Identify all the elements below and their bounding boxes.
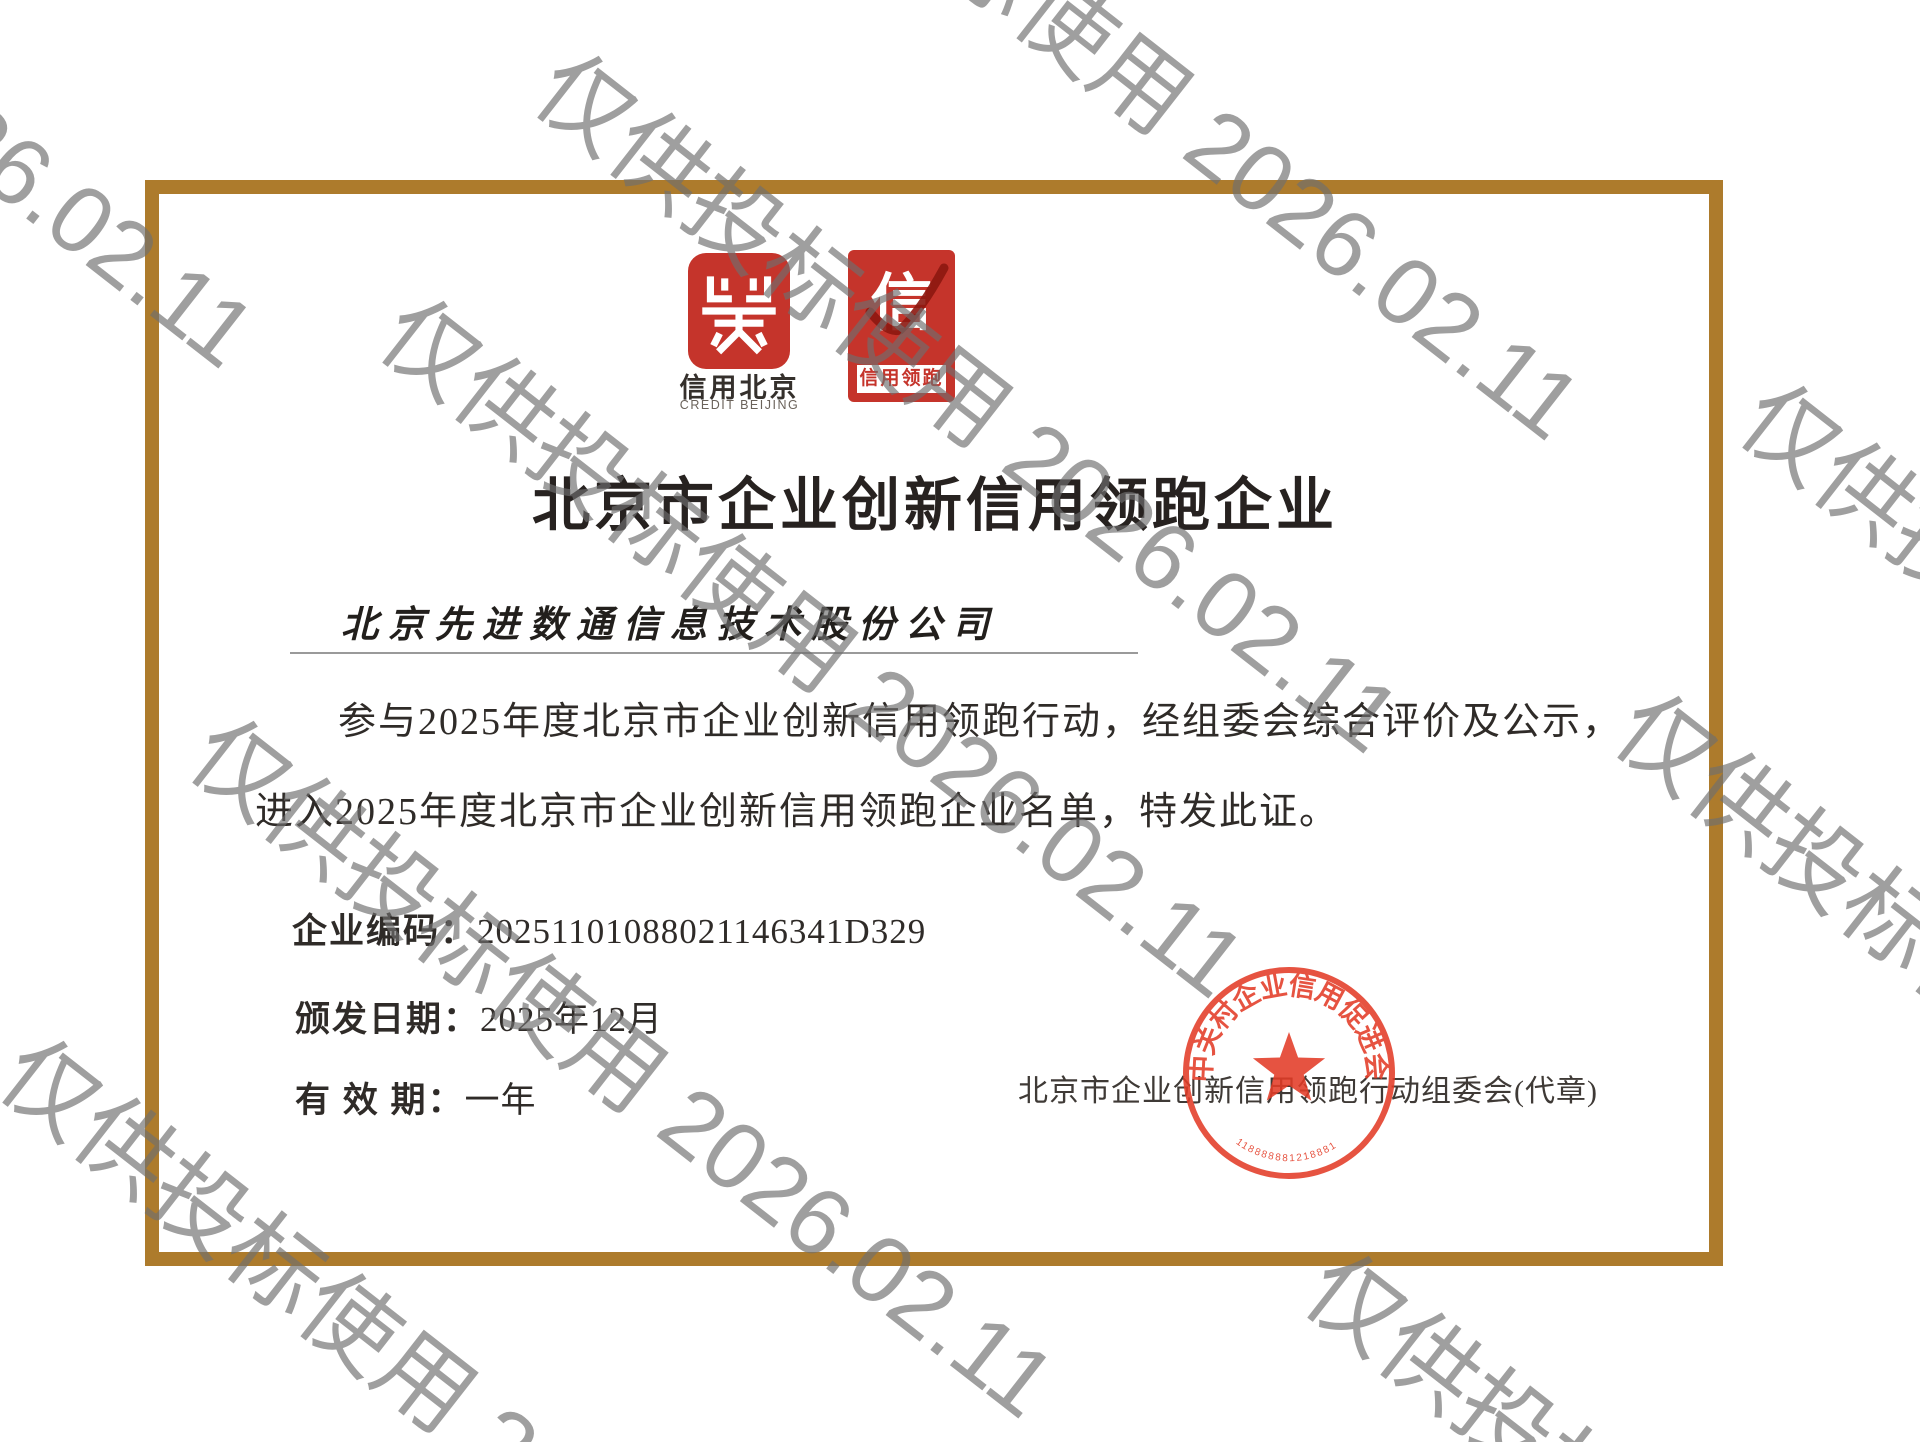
enterprise-code-field: 企业编码：20251101088021146341D329	[292, 903, 926, 954]
company-name: 北京先进数通信息技术股份公司	[300, 594, 1040, 648]
issue-date-value: 2025年12月	[480, 1000, 663, 1039]
credit-leader-label: 信用领跑	[855, 363, 948, 395]
credit-beijing-emblem-icon	[688, 253, 790, 369]
enterprise-code-value: 20251101088021146341D329	[477, 912, 926, 951]
validity-label: 有 效 期：	[295, 1081, 465, 1120]
validity-field: 有 效 期：一年	[295, 1072, 537, 1123]
watermark-text: 仅供投标使用 2026.02.11	[1716, 345, 1920, 1109]
official-seal-stamp: 中关村企业信用促进会 118888881218881	[1178, 962, 1400, 1184]
certificate-page: 信用北京 CREDIT BEIJING 信 信用领跑 北京市企业创新信用领跑企业…	[0, 0, 1920, 1442]
seal-serial-digits: 118888881218881	[1234, 1137, 1339, 1165]
checkmark-icon	[848, 250, 955, 360]
issue-date-label: 颁发日期：	[295, 1000, 480, 1039]
validity-value: 一年	[465, 1081, 537, 1120]
issue-date-field: 颁发日期：2025年12月	[295, 991, 663, 1042]
company-underline	[290, 652, 1138, 654]
credit-leader-logo-icon: 信 信用领跑	[848, 250, 955, 402]
credit-beijing-logo-icon	[688, 253, 790, 369]
body-line-2: 进入2025年度北京市企业创新信用领跑企业名单，特发此证。	[255, 780, 1339, 835]
seal-star-icon	[1253, 1032, 1325, 1101]
enterprise-code-label: 企业编码：	[292, 912, 477, 951]
body-line-1: 参与2025年度北京市企业创新信用领跑行动，经组委会综合评价及公示，	[338, 690, 1622, 745]
credit-beijing-caption-en: CREDIT BEIJING	[652, 398, 827, 412]
svg-text:118888881218881: 118888881218881	[1234, 1137, 1339, 1165]
certificate-title: 北京市企业创新信用领跑企业	[310, 458, 1560, 542]
